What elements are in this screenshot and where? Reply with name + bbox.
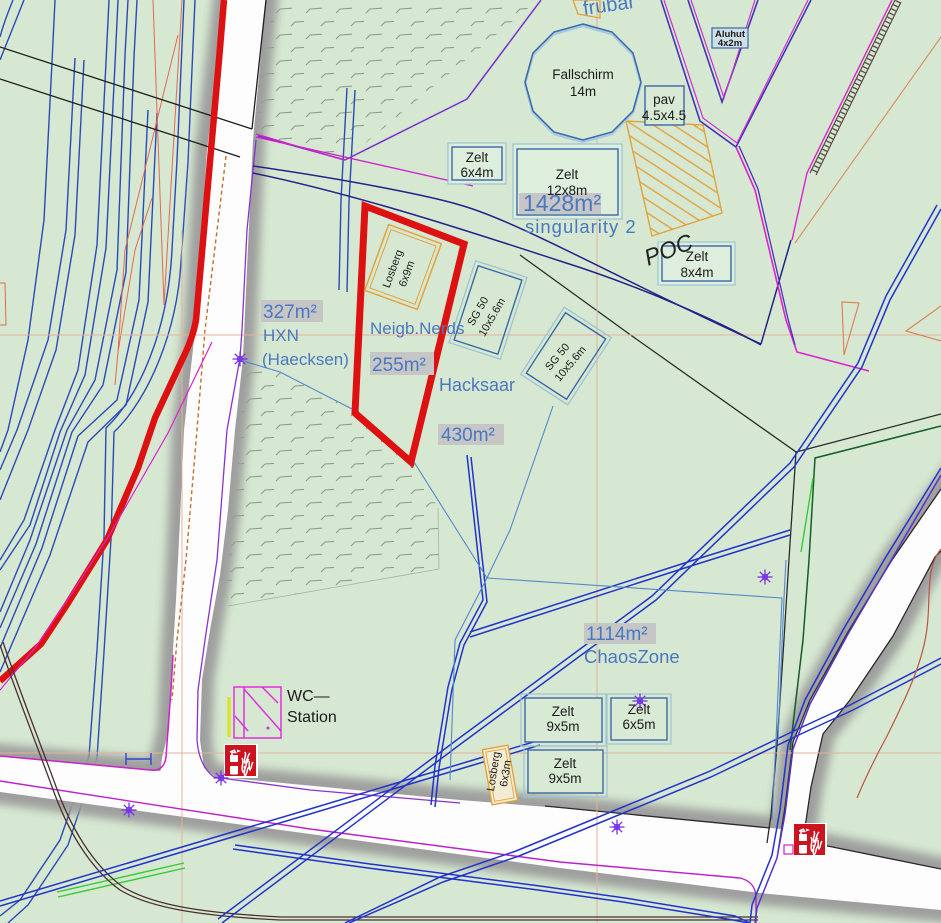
svg-text:8x4m: 8x4m (680, 265, 713, 280)
svg-text:(Haecksen): (Haecksen) (262, 350, 349, 369)
svg-text:WC—: WC— (287, 688, 330, 705)
svg-text:Zelt: Zelt (552, 704, 575, 719)
svg-text:1428m²: 1428m² (523, 190, 601, 216)
svg-text:255m²: 255m² (372, 355, 426, 376)
svg-text:Zelt: Zelt (556, 167, 579, 182)
svg-text:singularity 2: singularity 2 (525, 216, 637, 237)
svg-text:Zelt: Zelt (554, 756, 577, 771)
svg-text:430m²: 430m² (441, 425, 495, 446)
svg-text:Hacksaar: Hacksaar (439, 375, 515, 395)
svg-text:Fallschirm: Fallschirm (552, 67, 614, 82)
svg-text:ChaosZone: ChaosZone (584, 646, 680, 667)
svg-text:9x5m: 9x5m (546, 719, 579, 734)
svg-text:pav: pav (653, 92, 675, 107)
svg-text:14m: 14m (570, 84, 596, 99)
svg-text:6x5m: 6x5m (622, 717, 655, 732)
svg-text:4.5x4.5: 4.5x4.5 (642, 108, 686, 123)
svg-text:9x5m: 9x5m (548, 771, 581, 786)
svg-text:Station: Station (287, 709, 337, 726)
svg-text:4x2m: 4x2m (718, 38, 742, 49)
svg-text:Zelt: Zelt (628, 702, 651, 717)
svg-text:HXN: HXN (263, 326, 299, 345)
svg-text:Zelt: Zelt (466, 150, 489, 165)
svg-text:6x4m: 6x4m (460, 165, 493, 180)
svg-text:1114m²: 1114m² (586, 624, 648, 645)
svg-text:Neigb.Nerds: Neigb.Nerds (370, 319, 465, 338)
svg-text:327m²: 327m² (263, 302, 317, 323)
